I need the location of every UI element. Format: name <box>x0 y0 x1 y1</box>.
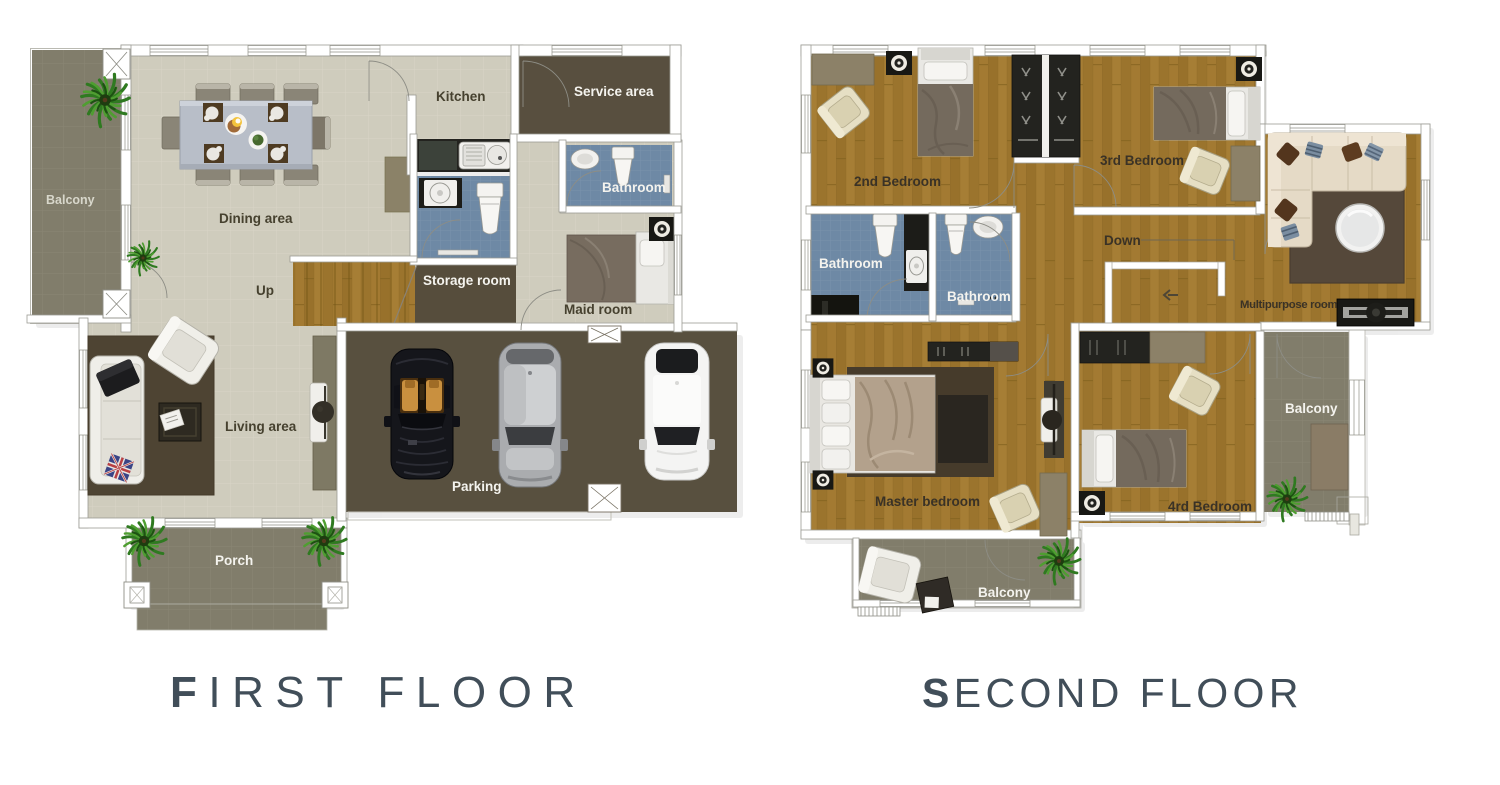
svg-text:Dining area: Dining area <box>219 211 293 226</box>
svg-text:Bathroom: Bathroom <box>947 289 1011 304</box>
svg-text:Up: Up <box>256 283 274 298</box>
svg-text:SECOND FLOOR: SECOND FLOOR <box>922 670 1303 716</box>
svg-text:Bathroom: Bathroom <box>819 256 883 271</box>
svg-text:Maid room: Maid room <box>564 302 632 317</box>
svg-text:Service area: Service area <box>574 84 654 99</box>
svg-text:Balcony: Balcony <box>46 193 95 207</box>
svg-text:Master bedroom: Master bedroom <box>875 494 980 509</box>
svg-text:2nd Bedroom: 2nd Bedroom <box>854 174 941 189</box>
svg-text:Living area: Living area <box>225 419 297 434</box>
svg-text:Down: Down <box>1104 233 1141 248</box>
svg-text:3rd Bedroom: 3rd Bedroom <box>1100 153 1184 168</box>
svg-text:Storage room: Storage room <box>423 273 511 288</box>
svg-text:Porch: Porch <box>215 553 253 568</box>
svg-text:Multipurpose room: Multipurpose room <box>1240 299 1337 311</box>
svg-text:Parking: Parking <box>452 479 502 494</box>
svg-text:Kitchen: Kitchen <box>436 89 486 104</box>
svg-text:4rd Bedroom: 4rd Bedroom <box>1168 499 1252 514</box>
svg-text:Balcony: Balcony <box>978 585 1031 600</box>
svg-text:Balcony: Balcony <box>1285 401 1338 416</box>
svg-text:FIRST FLOOR: FIRST FLOOR <box>170 668 587 717</box>
svg-text:Bathroom: Bathroom <box>602 180 666 195</box>
